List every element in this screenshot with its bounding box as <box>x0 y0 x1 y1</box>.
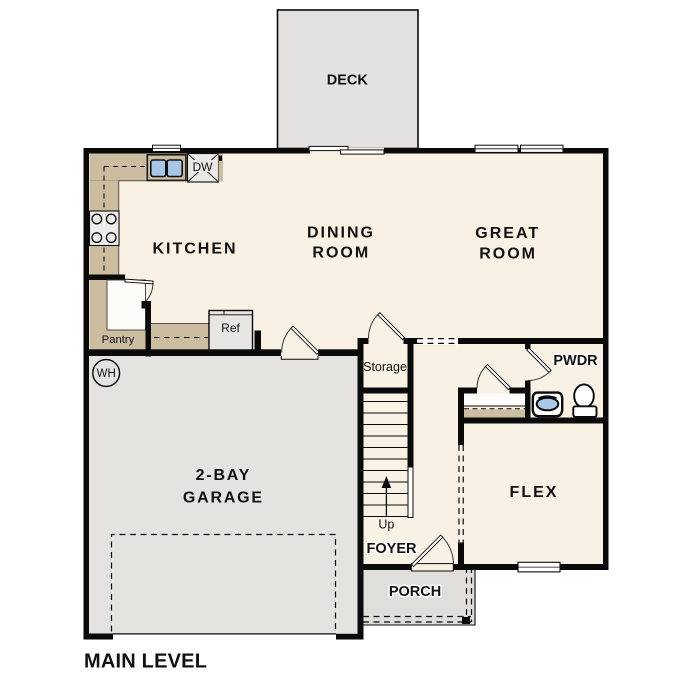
svg-text:ROOM: ROOM <box>312 245 370 262</box>
svg-text:2-BAY: 2-BAY <box>196 467 252 484</box>
svg-text:FLEX: FLEX <box>510 484 559 501</box>
svg-text:Pantry: Pantry <box>102 334 135 346</box>
svg-text:PWDR: PWDR <box>553 353 598 369</box>
svg-text:Ref: Ref <box>221 321 240 335</box>
svg-text:PORCH: PORCH <box>389 584 441 600</box>
svg-text:WH: WH <box>97 368 116 380</box>
svg-text:DW: DW <box>193 160 214 174</box>
svg-text:GARAGE: GARAGE <box>183 490 264 507</box>
svg-text:FOYER: FOYER <box>367 541 417 557</box>
svg-text:DECK: DECK <box>327 72 369 88</box>
svg-text:MAIN LEVEL: MAIN LEVEL <box>84 650 207 672</box>
svg-text:Up: Up <box>378 518 394 532</box>
svg-text:Storage: Storage <box>363 360 407 374</box>
svg-text:KITCHEN: KITCHEN <box>152 240 237 257</box>
svg-text:DINING: DINING <box>307 225 375 242</box>
svg-text:ROOM: ROOM <box>479 245 537 262</box>
svg-text:GREAT: GREAT <box>475 225 540 242</box>
